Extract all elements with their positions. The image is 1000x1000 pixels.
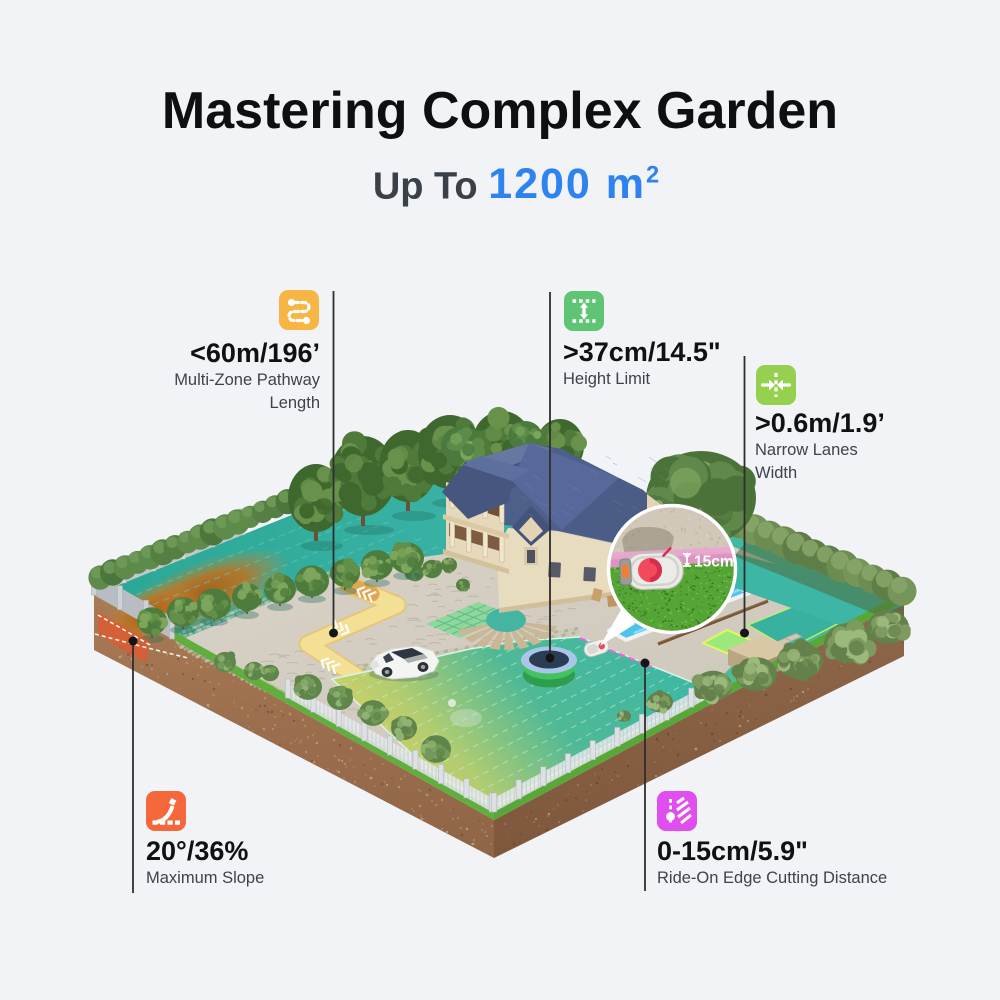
svg-text:15cm: 15cm bbox=[694, 554, 734, 571]
